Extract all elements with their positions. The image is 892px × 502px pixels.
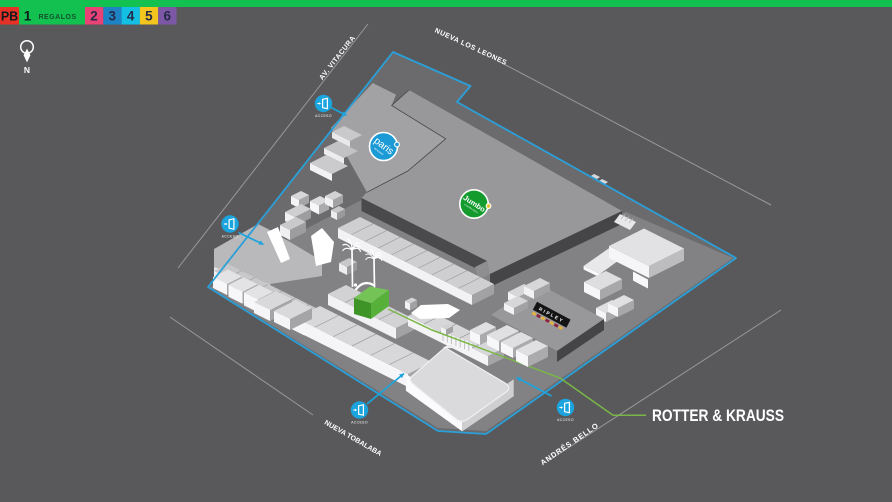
svg-text:4: 4 [127,9,135,24]
svg-text:2: 2 [90,9,98,24]
svg-text:PB: PB [1,10,18,24]
svg-text:ACCESO: ACCESO [557,418,574,422]
svg-text:ACCESO: ACCESO [315,114,332,118]
svg-text:ACCESO: ACCESO [222,235,239,239]
svg-text:6: 6 [163,9,171,24]
svg-text:5: 5 [145,9,153,24]
svg-text:REGALOS: REGALOS [39,14,77,21]
svg-text:3: 3 [109,9,117,24]
svg-text:ROTTER & KRAUSS: ROTTER & KRAUSS [652,406,784,425]
svg-text:N: N [24,65,30,75]
svg-text:ACCESO: ACCESO [351,421,368,425]
svg-text:1: 1 [24,9,32,24]
